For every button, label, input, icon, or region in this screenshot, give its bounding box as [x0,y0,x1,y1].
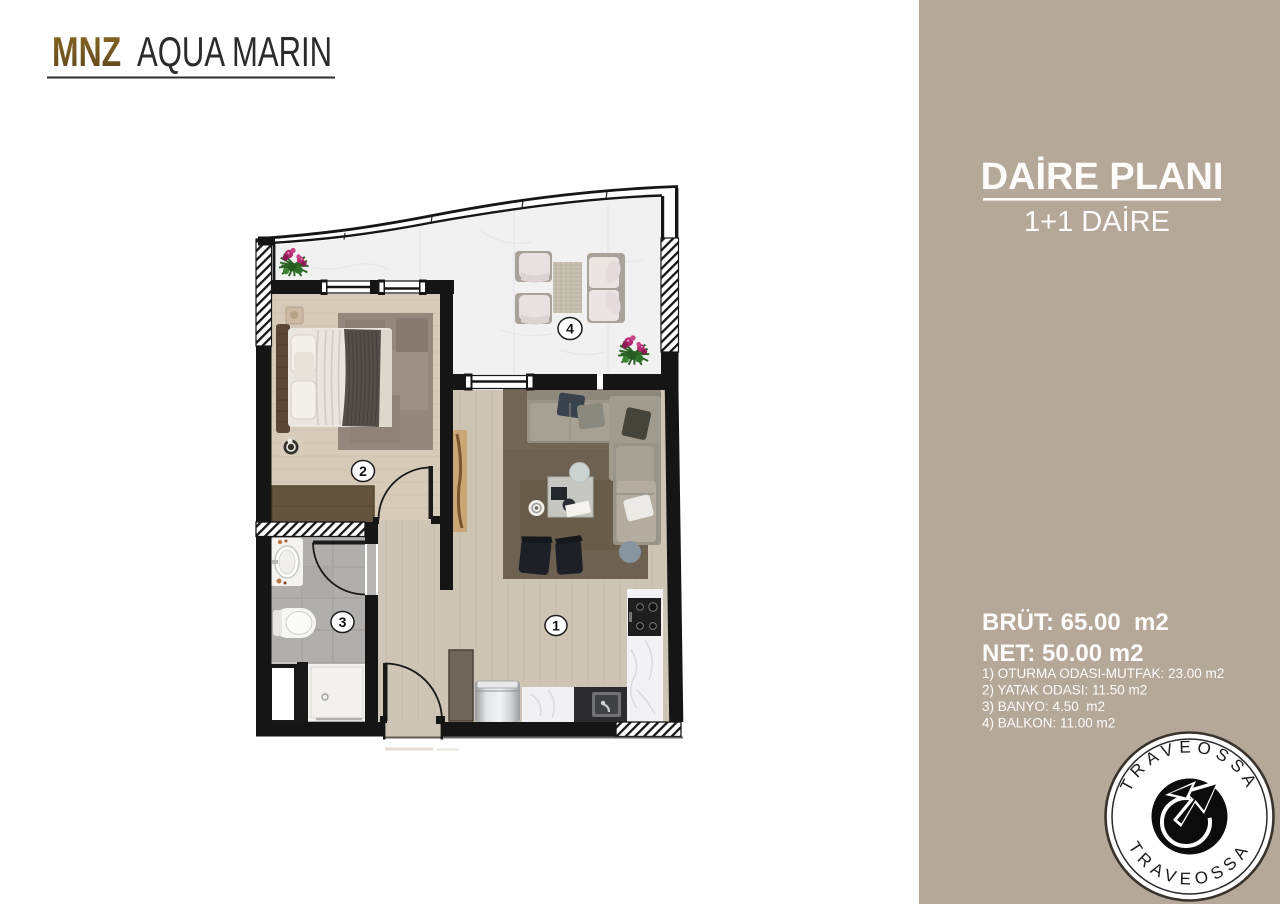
svg-text:1: 1 [552,618,560,634]
svg-text:3: 3 [339,614,347,630]
svg-text:2: 2 [359,463,367,479]
svg-text:4) BALKON: 11.00 m2: 4) BALKON: 11.00 m2 [982,716,1115,731]
svg-text:3) BANYO: 4.50 m2: 3) BANYO: 4.50 m2 [982,699,1105,714]
svg-text:1) OTURMA ODASI-MUTFAK: 23.00: 1) OTURMA ODASI-MUTFAK: 23.00 m2 [982,666,1224,681]
svg-text:AQUA MARIN: AQUA MARIN [137,28,332,75]
svg-text:DAİRE PLANI: DAİRE PLANI [981,156,1224,198]
svg-text:4: 4 [566,321,574,337]
svg-text:MNZ: MNZ [52,28,121,75]
svg-text:BRÜT: 65.00 m2: BRÜT: 65.00 m2 [982,609,1169,636]
svg-text:NET: 50.00 m2: NET: 50.00 m2 [982,640,1143,667]
svg-text:1+1 DAİRE: 1+1 DAİRE [1024,205,1170,238]
svg-text:2) YATAK ODASI: 11.50 m2: 2) YATAK ODASI: 11.50 m2 [982,683,1147,698]
